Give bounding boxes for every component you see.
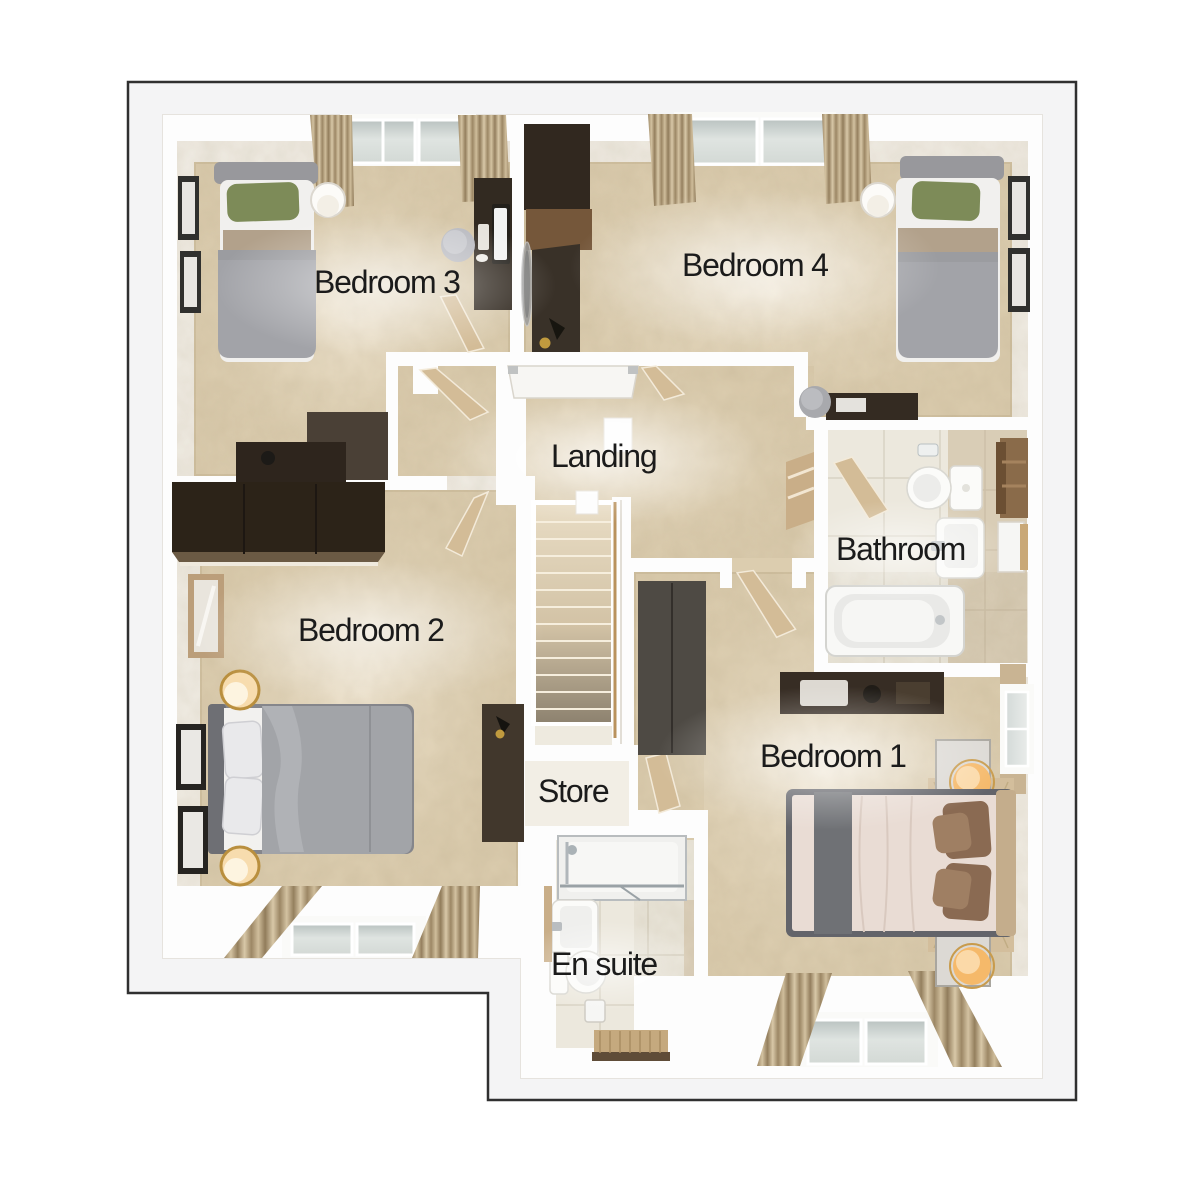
svg-text:En suite: En suite xyxy=(551,946,657,982)
svg-text:Bathroom: Bathroom xyxy=(836,531,965,567)
svg-text:Landing: Landing xyxy=(551,438,657,474)
svg-text:Store: Store xyxy=(538,773,609,809)
svg-text:Bedroom 1: Bedroom 1 xyxy=(760,738,906,774)
svg-text:Bedroom 4: Bedroom 4 xyxy=(682,247,828,283)
svg-text:Bedroom 2: Bedroom 2 xyxy=(298,612,444,648)
svg-text:Bedroom 3: Bedroom 3 xyxy=(314,264,460,300)
